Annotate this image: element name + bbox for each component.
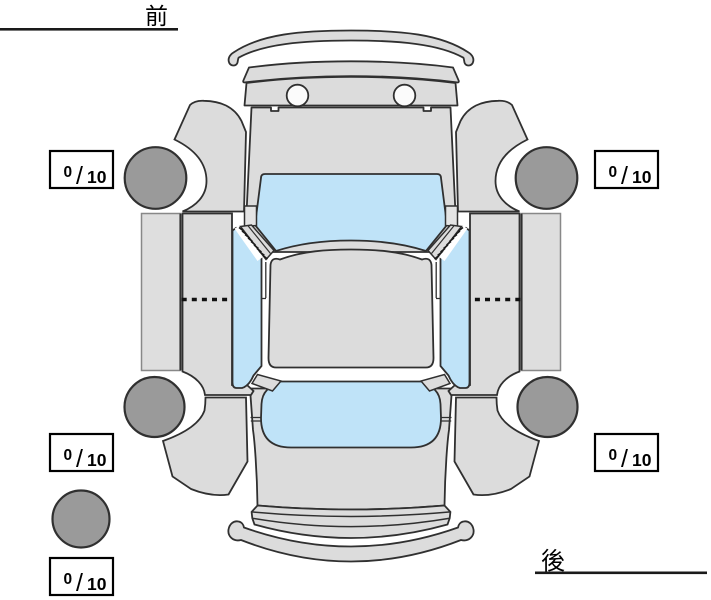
svg-text:10: 10 [87, 450, 107, 470]
svg-text:10: 10 [87, 167, 107, 187]
svg-text:/: / [76, 162, 83, 190]
svg-text:0: 0 [64, 164, 73, 181]
svg-text:10: 10 [632, 450, 652, 470]
svg-text:0: 0 [609, 447, 618, 464]
svg-text:/: / [621, 162, 628, 190]
svg-text:10: 10 [632, 167, 652, 187]
svg-text:後: 後 [541, 548, 565, 575]
svg-text:0: 0 [64, 447, 73, 464]
svg-text:/: / [76, 569, 83, 597]
svg-text:/: / [76, 445, 83, 473]
svg-text:10: 10 [87, 574, 107, 594]
svg-text:0: 0 [64, 571, 73, 588]
svg-text:0: 0 [609, 164, 618, 181]
svg-text:前: 前 [145, 3, 168, 29]
svg-text:/: / [621, 445, 628, 473]
